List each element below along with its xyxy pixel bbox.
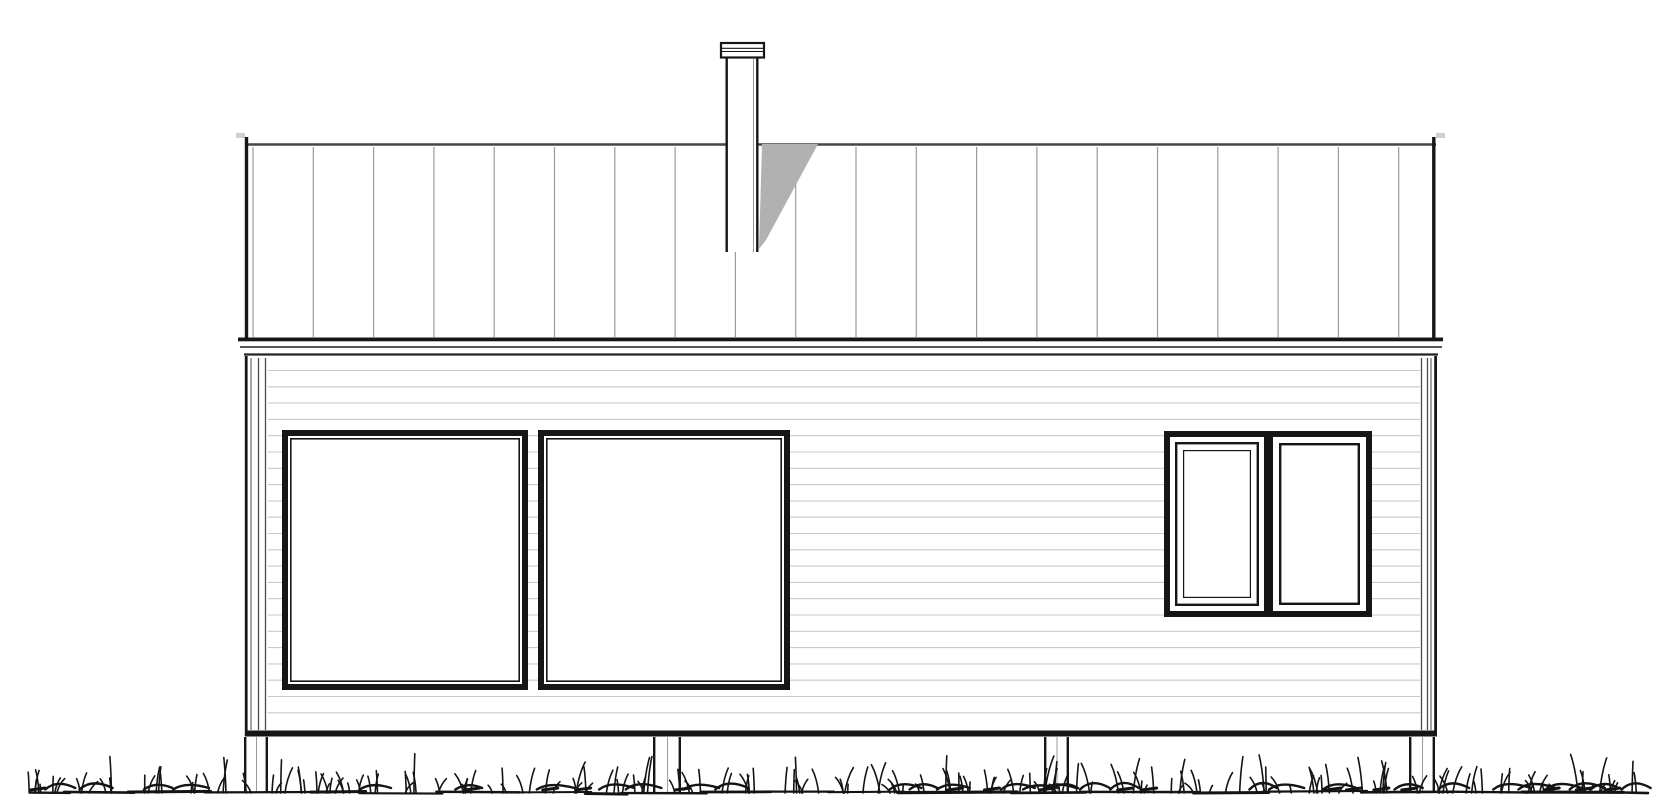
ground-line xyxy=(64,792,134,793)
grass-blade xyxy=(946,756,947,793)
grass-blade xyxy=(1466,774,1470,793)
grass-blade xyxy=(272,775,274,793)
grass-clump xyxy=(1346,788,1361,790)
grass-blade xyxy=(617,780,619,793)
grass-blade xyxy=(376,771,377,793)
grass-clump xyxy=(543,788,558,790)
fascia-board xyxy=(238,338,1443,342)
fascia xyxy=(238,338,1443,355)
ground-line xyxy=(1446,792,1528,793)
elevation-drawing-svg xyxy=(0,0,1670,800)
grass-blade xyxy=(285,768,293,793)
window-large-2 xyxy=(541,433,787,687)
grass-blade xyxy=(35,780,36,793)
ground-line xyxy=(898,792,1017,793)
grass-blade xyxy=(795,757,796,793)
chimney xyxy=(721,43,764,252)
grass-blade xyxy=(502,768,503,793)
grass-clump xyxy=(1544,788,1559,790)
grass-blade xyxy=(1453,767,1462,793)
grass-blade xyxy=(529,768,534,793)
grass-clump xyxy=(576,788,591,790)
grass-blade xyxy=(1321,775,1322,793)
grass-clump xyxy=(1374,788,1389,790)
wall-base-band xyxy=(245,731,1437,737)
grass-clump xyxy=(1326,788,1341,790)
roof-left-cap-mark xyxy=(236,133,245,138)
ground-line xyxy=(128,791,210,792)
window-large-2-frame xyxy=(541,433,787,687)
roof xyxy=(236,133,1445,339)
grass xyxy=(28,754,1650,794)
grass-blade xyxy=(970,782,971,793)
grass-blade xyxy=(753,768,754,793)
grass-fallen-blade xyxy=(1080,783,1110,789)
grass-blade xyxy=(1266,767,1267,793)
grass-blade xyxy=(1030,773,1031,793)
grass-blade xyxy=(1481,769,1482,793)
grass-fallen-blade xyxy=(715,784,748,790)
window-large-1-frame xyxy=(285,433,525,687)
ground-line xyxy=(436,792,519,793)
grass-blade xyxy=(82,773,87,793)
grass-clump xyxy=(1605,788,1620,790)
chimney-cap xyxy=(721,43,764,58)
window-large-1 xyxy=(285,433,525,687)
grass-fallen-blade xyxy=(80,783,113,789)
grass-blade xyxy=(1632,761,1633,793)
foundation-post xyxy=(244,737,268,792)
grass-fallen-blade xyxy=(1269,785,1304,790)
grass-blade xyxy=(785,767,787,793)
window-pair xyxy=(1167,434,1369,614)
grass-clump xyxy=(465,788,480,790)
foundation-post-fill xyxy=(653,737,681,792)
grass-clump xyxy=(948,788,963,790)
grass-blade xyxy=(281,760,282,793)
grass-clump xyxy=(1576,788,1591,790)
window-pair-divider xyxy=(1264,437,1273,611)
grass-blade xyxy=(845,768,854,793)
roof-right-cap-mark xyxy=(1436,133,1445,138)
ground-line xyxy=(1011,792,1086,793)
architectural-elevation-drawing xyxy=(0,0,1670,800)
grass-blade xyxy=(517,776,523,793)
grass-blade xyxy=(964,776,969,793)
grass-blade xyxy=(606,770,613,793)
grass-blade xyxy=(812,769,819,793)
grass-clump xyxy=(1142,788,1157,790)
chimney-shadow xyxy=(759,144,818,249)
foundation-post xyxy=(653,737,681,792)
grass-blade xyxy=(699,770,701,794)
grass-blade xyxy=(863,767,868,793)
grass-blade xyxy=(316,772,317,793)
grass-blade xyxy=(878,763,885,793)
grass-clump xyxy=(1118,788,1133,790)
grass-blade xyxy=(1225,773,1232,793)
grass-clump xyxy=(1402,788,1417,790)
grass-fallen-blade xyxy=(45,784,75,790)
grass-blade xyxy=(903,785,904,793)
grass-blade xyxy=(1240,757,1243,793)
grass-clump xyxy=(984,788,999,790)
grass-clump xyxy=(30,788,45,790)
grass-blade xyxy=(1171,779,1172,794)
